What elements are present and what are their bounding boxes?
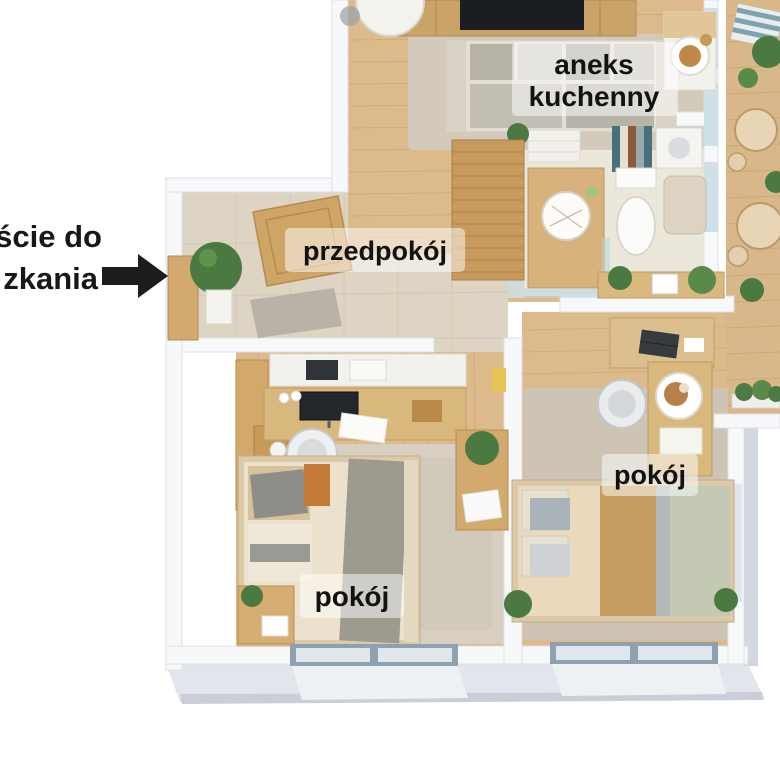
balcony-table bbox=[737, 203, 780, 249]
floor-plan-canvas: aneks kuchenny przedpokój pokój pokój śc… bbox=[0, 0, 780, 780]
east-window-glass-1 bbox=[704, 84, 718, 146]
bottom-bed-cream-edge bbox=[404, 460, 418, 642]
entrance-annotation-line1: ście do bbox=[0, 219, 102, 254]
desk-cup bbox=[279, 393, 289, 403]
napkin bbox=[660, 428, 702, 454]
hallway-plant bbox=[190, 242, 242, 294]
right-bed-pillow-gray bbox=[530, 544, 570, 576]
console-plant bbox=[465, 431, 499, 465]
desk-cup bbox=[291, 391, 301, 401]
right-room-chair-seat bbox=[608, 390, 636, 418]
washing-machine-door bbox=[668, 137, 690, 159]
bathroom-armchair bbox=[664, 176, 706, 234]
right-bed-tan-runner bbox=[600, 486, 656, 616]
floor-plan-svg: aneks kuchenny przedpokój pokój pokój śc… bbox=[0, 0, 780, 780]
striped-towels bbox=[612, 126, 652, 172]
nightstand-papers bbox=[262, 616, 288, 636]
food-on-plate bbox=[679, 45, 701, 67]
shelf-picture-frame bbox=[652, 274, 678, 294]
entrance-annotation-line2: zkania bbox=[3, 261, 99, 296]
room-label-hallway: przedpokój bbox=[303, 236, 447, 266]
nightstand-plant bbox=[241, 585, 263, 607]
bottom-bed-pillow-gray bbox=[250, 469, 308, 518]
right-exterior-face bbox=[744, 420, 758, 666]
room-label-right: pokój bbox=[614, 460, 686, 490]
bread-roll bbox=[700, 34, 712, 46]
balcony-table bbox=[735, 109, 777, 151]
room-label-kitchen-line2: kuchenny bbox=[529, 81, 660, 112]
bottom-bed-pillow-orange bbox=[304, 464, 330, 506]
wall-hallway-south-left bbox=[182, 338, 434, 352]
desk-paper bbox=[684, 338, 704, 352]
right-room-plant bbox=[714, 588, 738, 612]
sofa-cushion bbox=[470, 44, 514, 80]
window-recess bbox=[292, 666, 468, 700]
kitchen-counter-wood-top bbox=[664, 12, 716, 38]
dining-chair bbox=[340, 6, 360, 26]
wall-top-left bbox=[166, 178, 348, 192]
balcony-plant bbox=[740, 278, 764, 302]
window-glass bbox=[638, 646, 712, 660]
shelf-plant bbox=[688, 266, 716, 294]
right-bed-pillow-gray bbox=[530, 498, 570, 530]
wall-hook-towel bbox=[492, 368, 506, 392]
window-glass bbox=[296, 648, 370, 662]
shower-glass-panel bbox=[524, 288, 608, 298]
hallway-plant-pot bbox=[206, 290, 232, 324]
wall-left bbox=[166, 178, 182, 670]
shelf-tray bbox=[350, 360, 386, 380]
wall-living-west bbox=[332, 0, 348, 192]
window-glass bbox=[378, 648, 452, 662]
balcony-end-ledge bbox=[714, 414, 780, 428]
window-glass bbox=[556, 646, 630, 660]
balcony-stool bbox=[728, 153, 746, 171]
tv-screen bbox=[460, 0, 584, 30]
shelf-tablet bbox=[306, 360, 338, 380]
cake-cream bbox=[679, 383, 689, 393]
toilet-bowl bbox=[617, 197, 655, 255]
vanity-jar bbox=[586, 186, 598, 198]
bathroom-step-shelf bbox=[528, 130, 580, 162]
console-card bbox=[462, 490, 502, 523]
room-label-kitchen-line1: aneks bbox=[554, 49, 633, 80]
hallway-plant-highlight bbox=[199, 249, 217, 267]
balcony-plant bbox=[738, 68, 758, 88]
balcony-stool bbox=[728, 246, 748, 266]
sofa-armrest-left bbox=[446, 40, 466, 132]
desk-wood-box bbox=[412, 400, 442, 422]
planter-greenery bbox=[735, 383, 753, 401]
shelf-plant bbox=[608, 266, 632, 290]
toilet-tank bbox=[616, 168, 656, 188]
room-label-bottom: pokój bbox=[315, 581, 390, 612]
right-room-plant bbox=[504, 590, 532, 618]
window-recess bbox=[552, 664, 726, 696]
bottom-bed-pillow-stripe bbox=[250, 544, 310, 562]
